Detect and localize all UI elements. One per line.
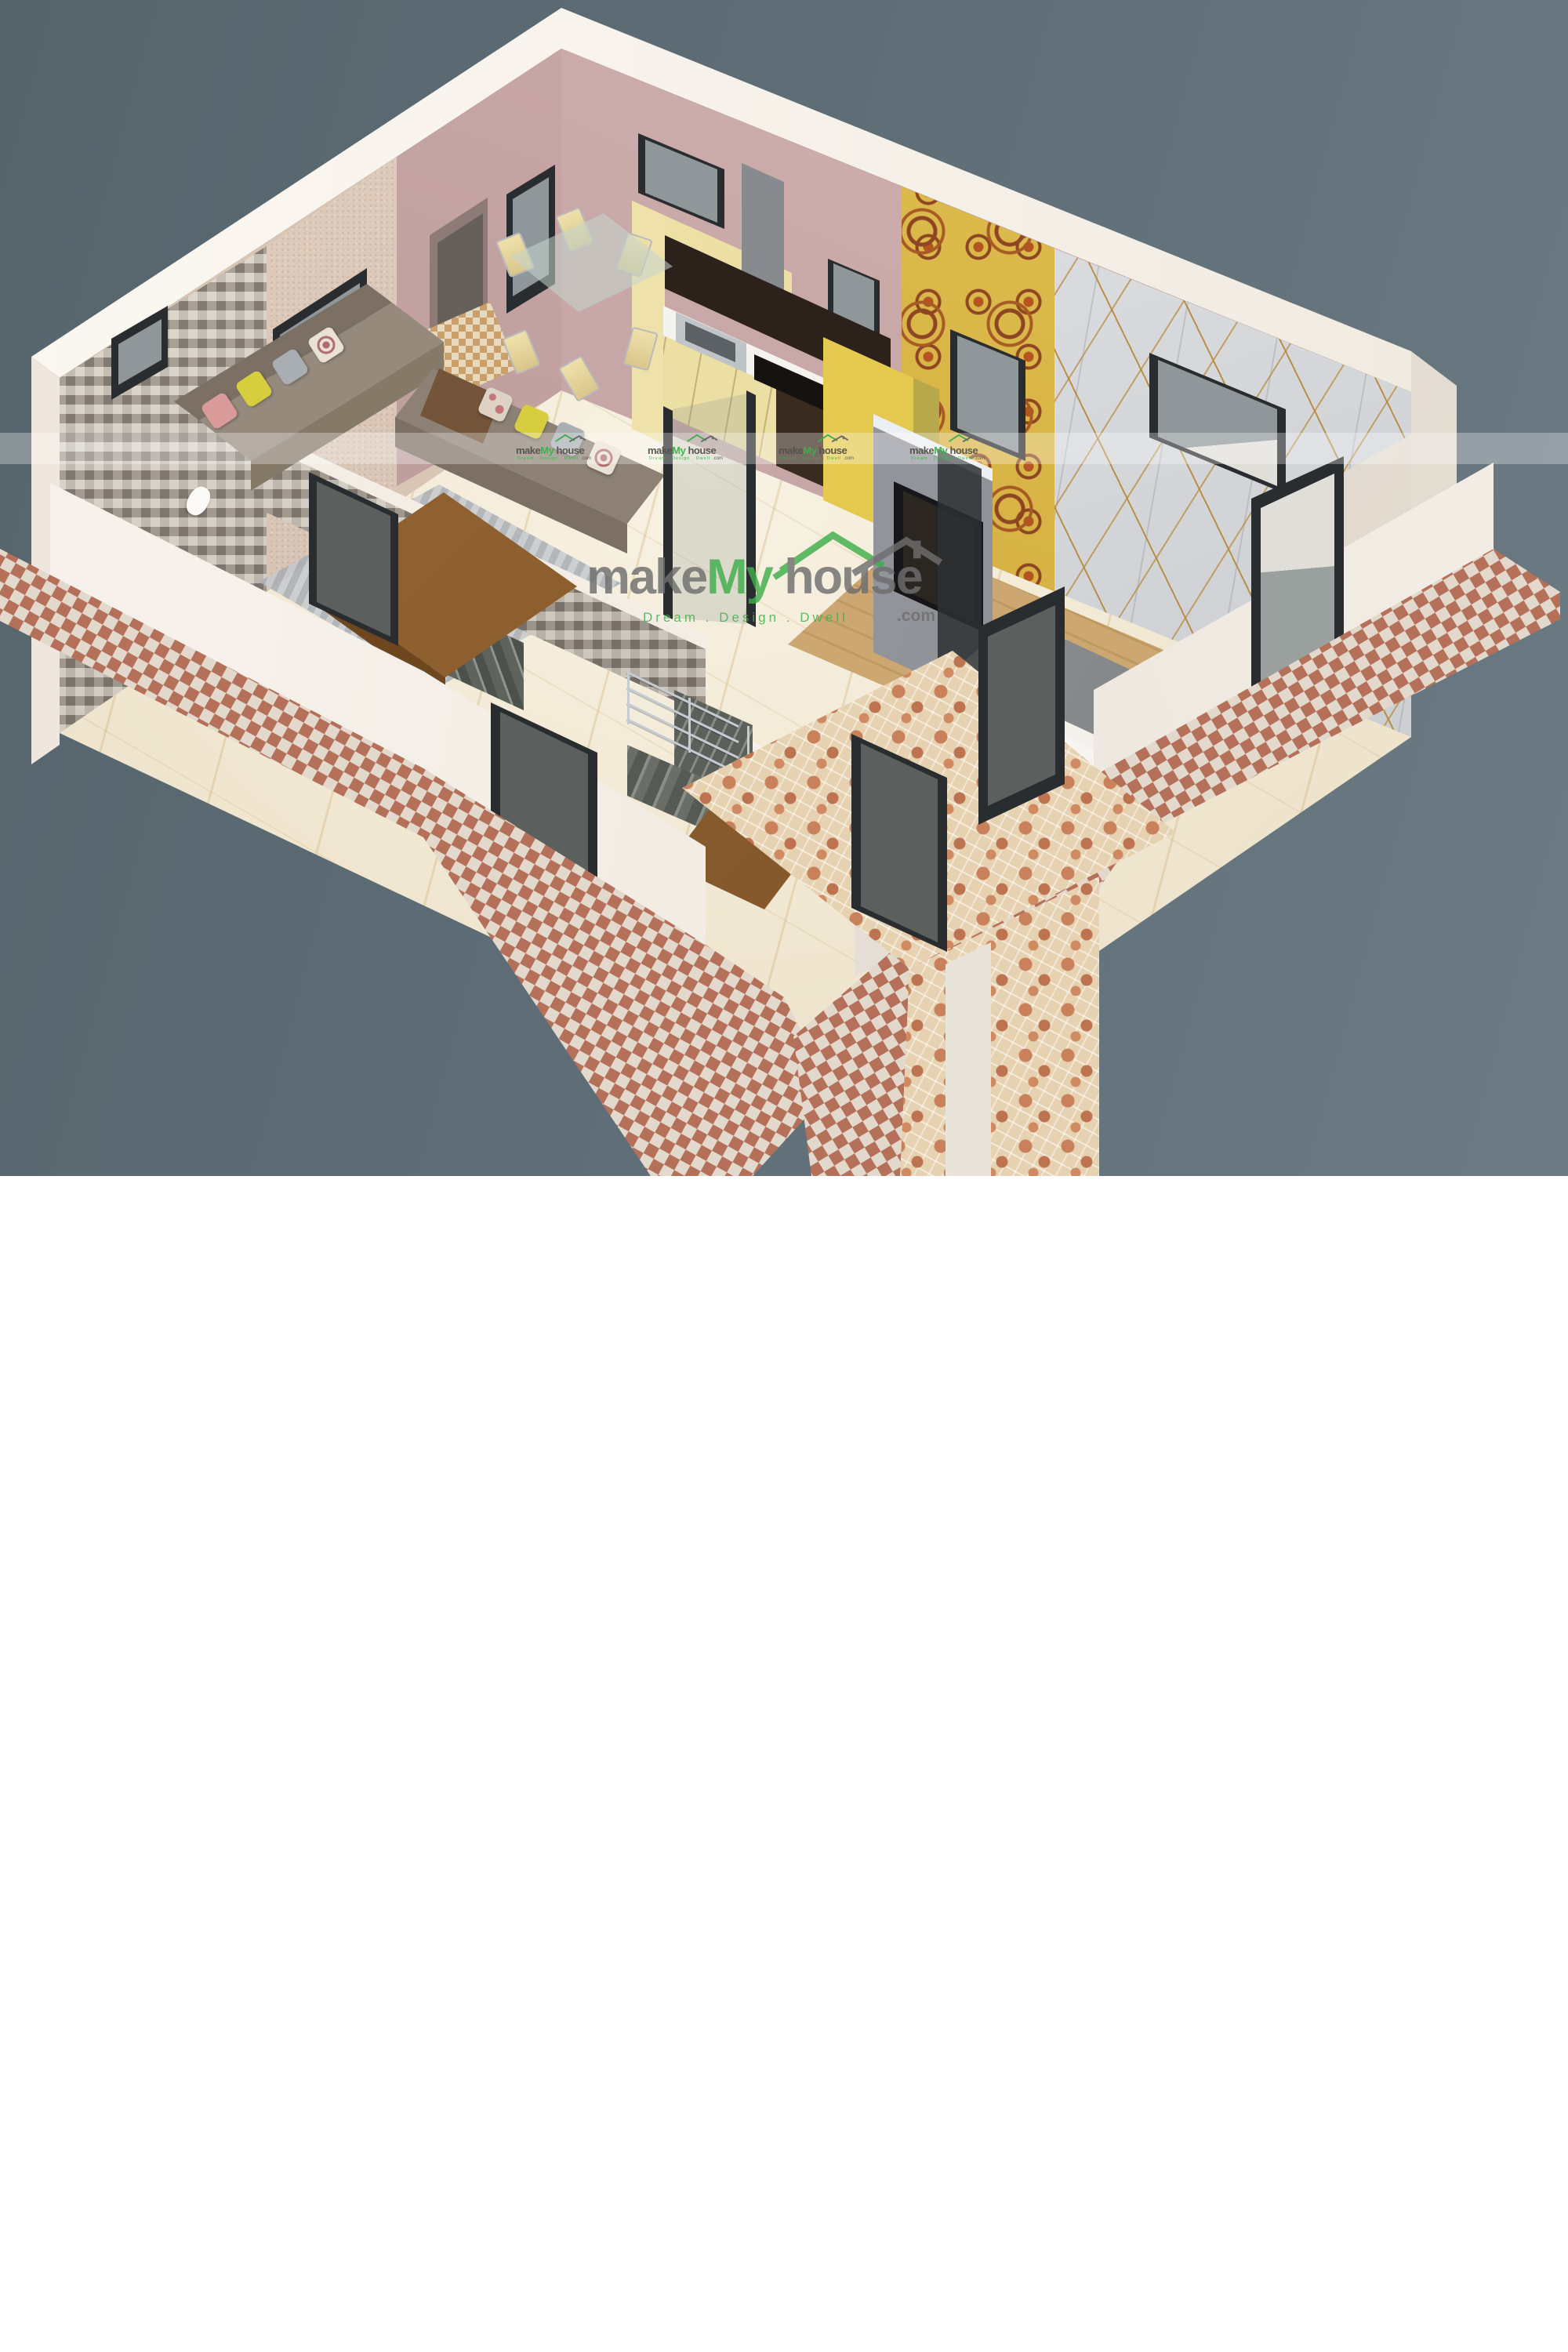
brand-domain: .com <box>897 607 935 626</box>
floor-plan-scene: makeMy house Dream . Design . Dwell .com… <box>0 0 1568 1176</box>
stair-railing-post <box>627 670 630 724</box>
watermark-logo: makeMy house Dream . Design . Dwell .com <box>648 434 723 463</box>
watermark-logo: makeMy house Dream . Design . Dwell .com <box>516 434 591 463</box>
stair-railing-post <box>688 698 691 753</box>
brand-wordmark: makeMy house <box>586 549 922 605</box>
roof-icon <box>816 434 849 445</box>
roof-icon <box>685 434 718 445</box>
brand-tagline: Dream . Design . Dwell <box>643 610 848 626</box>
brand-logo: makeMy house Dream . Design . Dwell .com <box>586 528 951 635</box>
roof-icon <box>947 434 980 445</box>
watermark-logo: makeMy house Dream . Design . Dwell .com <box>909 434 985 463</box>
roof-icon <box>554 434 586 445</box>
watermark-logo: makeMy house Dream . Design . Dwell .com <box>779 434 854 463</box>
